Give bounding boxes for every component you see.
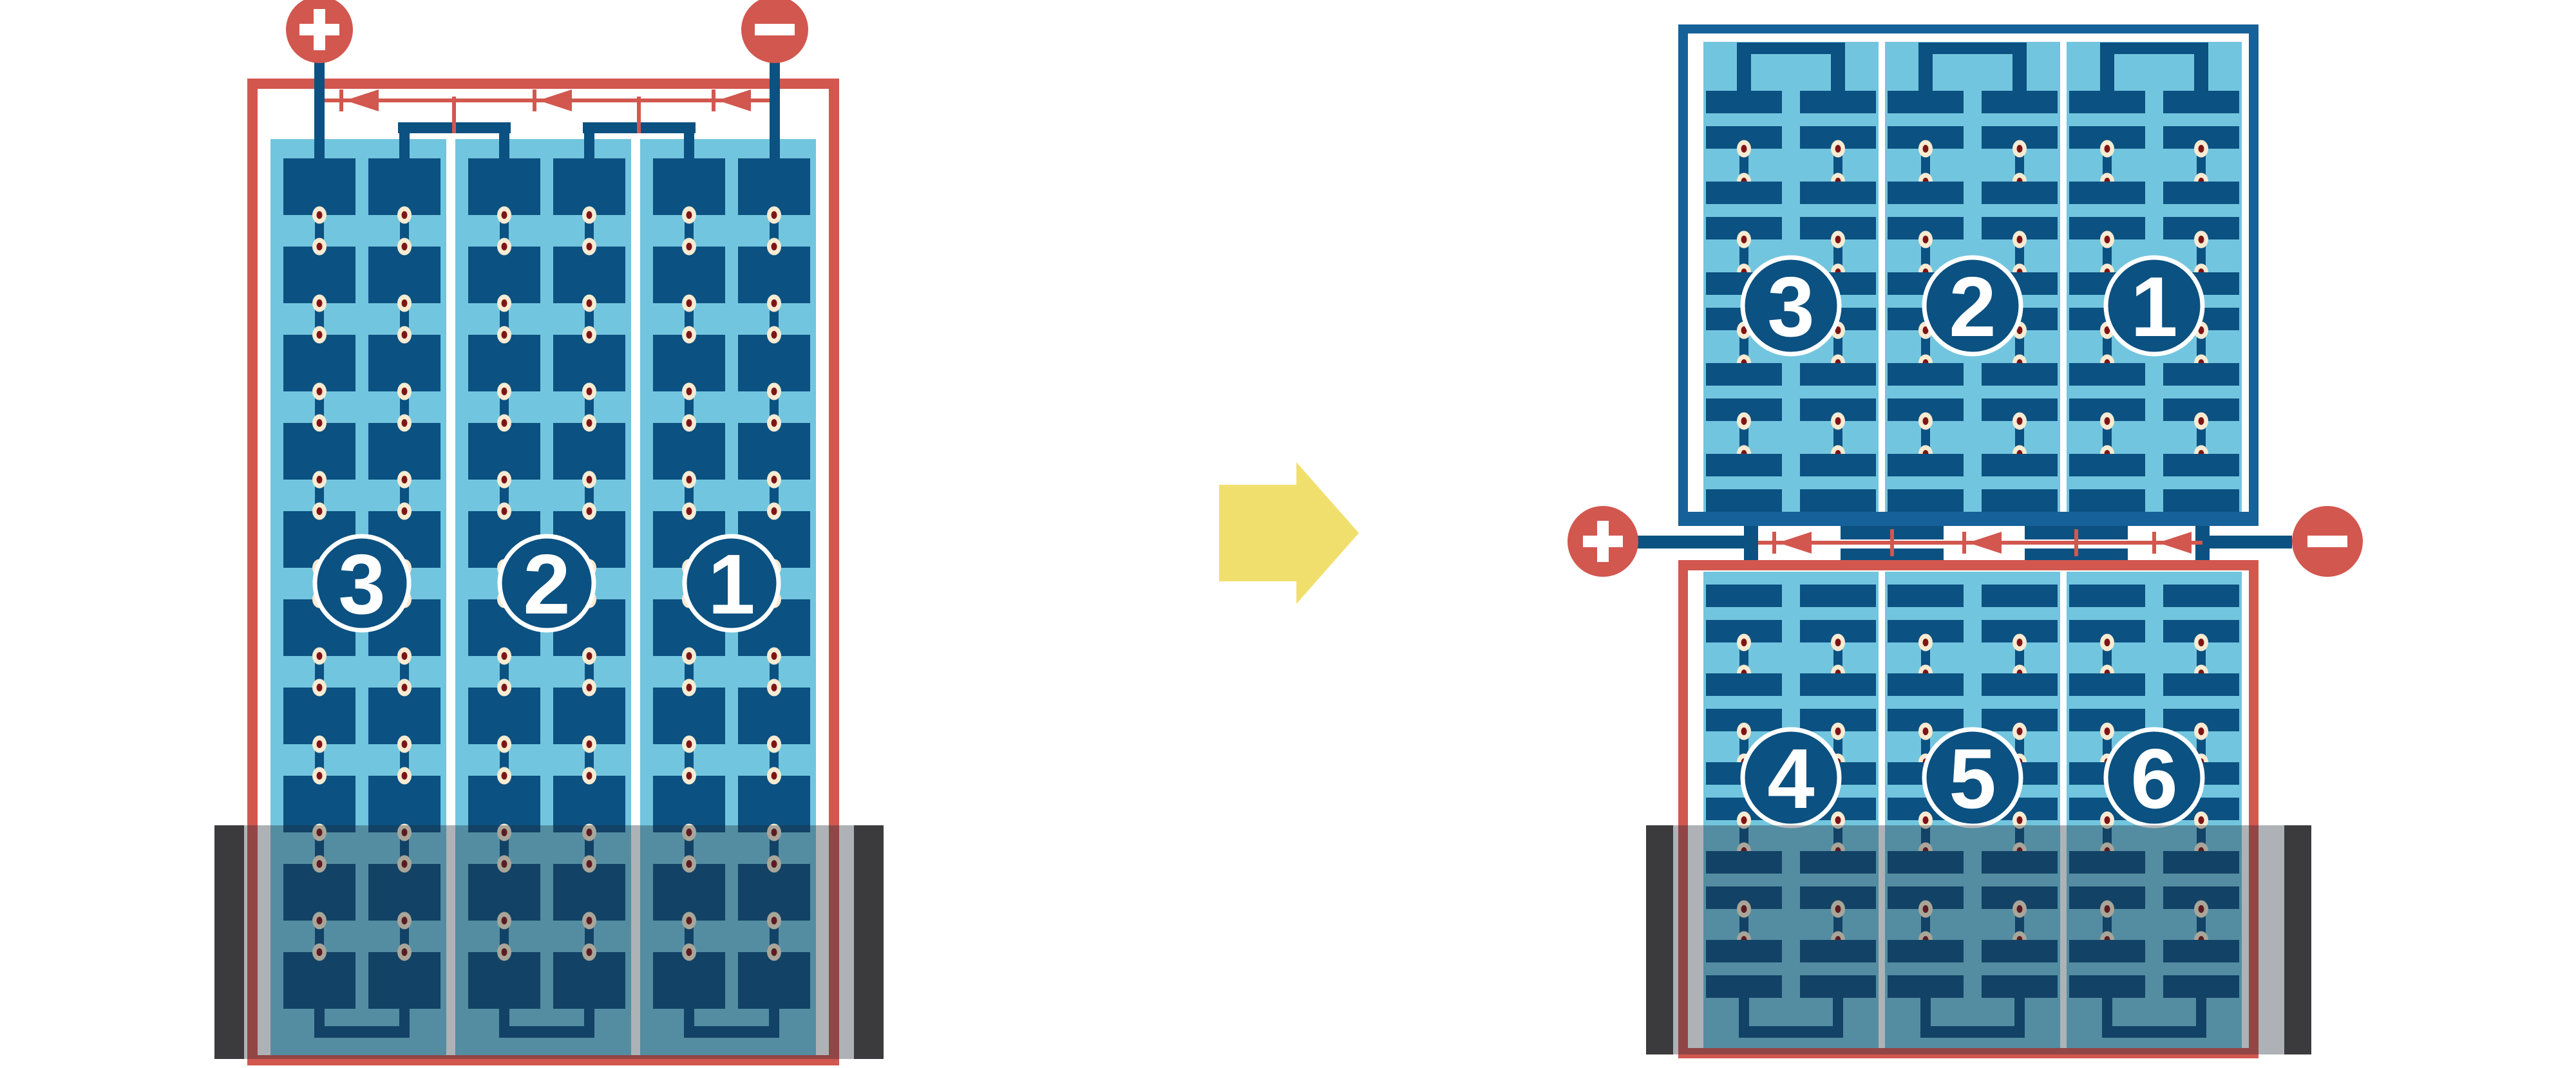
solder-dot-icon [317, 299, 323, 307]
string-number-badge: 1 [2106, 258, 2202, 354]
shade-overlay [214, 825, 884, 1059]
junction-tick [2074, 529, 2078, 556]
solder-dot-icon [687, 652, 692, 660]
solder-dot-icon [2105, 727, 2110, 735]
solar-half-cell [1888, 454, 1964, 476]
string-number-badge: 3 [315, 536, 409, 632]
solder-dot-icon [2105, 236, 2110, 243]
string-number-badge: 2 [1924, 258, 2021, 354]
solder-dot-icon [502, 299, 507, 307]
solder-dot-icon [587, 419, 592, 427]
solder-dot-icon [587, 388, 592, 395]
solar-half-cell [1888, 363, 1964, 386]
bypass-diode-icon [533, 89, 572, 111]
solder-dot-icon [1923, 236, 1929, 243]
solder-dot-icon [402, 740, 408, 748]
solar-half-cell [2069, 489, 2145, 512]
solder-dot-icon [502, 419, 507, 427]
shadow-edge-bar [1646, 825, 1673, 1054]
solar-half-cell [1982, 585, 2058, 607]
solar-half-cell [2069, 585, 2145, 607]
solder-dot-icon [687, 684, 692, 691]
frame-bottom [1678, 512, 2259, 526]
terminal-stem [2210, 536, 2292, 548]
solar-half-cell [2163, 673, 2239, 696]
bridge-bar [1918, 42, 2027, 54]
diode-cathode-bar [1772, 532, 1776, 554]
solder-dot-icon [502, 740, 507, 748]
solder-dot-icon [772, 388, 777, 395]
solar-half-cell [1706, 91, 1782, 113]
solder-dot-icon [2199, 417, 2204, 425]
solder-dot-icon [317, 388, 323, 395]
solar-half-cell [2069, 454, 2145, 476]
solder-dot-icon [687, 476, 692, 483]
shadow-edge-bar [214, 825, 244, 1059]
solder-dot-icon [402, 652, 408, 660]
solder-dot-icon [317, 243, 323, 250]
solder-dot-icon [502, 476, 507, 483]
solder-dot-icon [2017, 727, 2023, 735]
solar-half-cell [1800, 585, 1876, 607]
badge-number: 5 [1949, 731, 1996, 826]
solder-dot-icon [2017, 639, 2023, 646]
diode-triangle [1778, 532, 1812, 554]
shadow-region [1646, 825, 2311, 1054]
solar-half-cell [2069, 91, 2145, 113]
solar-half-cell [2163, 182, 2239, 204]
badge-number: 3 [1767, 259, 1814, 354]
solder-dot-icon [687, 419, 692, 427]
solder-dot-icon [587, 476, 592, 483]
solar-half-cell [1982, 489, 2058, 512]
solder-dot-icon [502, 652, 507, 660]
solder-dot-icon [1923, 727, 1929, 735]
solder-dot-icon [2105, 816, 2110, 824]
solar-half-cell [2163, 489, 2239, 512]
diode-bus [325, 89, 770, 133]
solder-dot-icon [317, 476, 323, 483]
string-number-badge: 6 [2106, 729, 2202, 826]
solder-dot-icon [772, 331, 777, 339]
solder-dot-icon [502, 211, 507, 219]
solder-dot-icon [1923, 417, 1929, 425]
solar-half-cell [1800, 673, 1876, 696]
solder-dot-icon [587, 507, 592, 515]
solder-dot-icon [317, 740, 323, 748]
solder-dot-icon [502, 388, 507, 395]
solder-dot-icon [502, 331, 507, 339]
solder-dot-icon [2199, 639, 2204, 646]
solder-dot-icon [1923, 145, 1929, 153]
solder-dot-icon [317, 772, 323, 780]
solder-dot-icon [1835, 145, 1841, 153]
diagram-canvas: 321321456 [0, 0, 2576, 1068]
solder-dot-icon [2105, 417, 2110, 425]
frame-right [2249, 24, 2259, 526]
solder-dot-icon [772, 652, 777, 660]
solder-dot-icon [687, 388, 692, 395]
diode-triangle [538, 89, 572, 111]
solder-dot-icon [1741, 417, 1747, 425]
solar-half-cell [1706, 363, 1782, 386]
bridge-leg [584, 132, 594, 160]
solder-dot-icon [772, 507, 777, 515]
string-number-badge: 4 [1743, 729, 1839, 826]
diode-cathode-bar [2152, 532, 2156, 554]
solder-dot-icon [402, 684, 408, 691]
transform-arrow [1219, 462, 1359, 604]
plus-icon [1597, 521, 1609, 562]
bypass-diode-icon [2152, 532, 2192, 554]
badge-number: 3 [338, 537, 385, 632]
solder-dot-icon [402, 243, 408, 250]
solder-dot-icon [402, 388, 408, 395]
solar-half-cell [1982, 91, 2058, 113]
solder-dot-icon [402, 476, 408, 483]
solar-half-cell [1888, 585, 1964, 607]
solder-dot-icon [687, 243, 692, 250]
solar-half-cell [1888, 182, 1964, 204]
solar-half-cell [2163, 585, 2239, 607]
junction-tick [1890, 529, 1894, 556]
bridge-bar [1737, 42, 1845, 54]
solder-dot-icon [772, 740, 777, 748]
solder-dot-icon [1835, 639, 1841, 646]
transform-arrow-icon [1219, 462, 1359, 604]
shade-overlay [1646, 825, 2311, 1054]
right-module-bottom-half: 456 [1646, 560, 2311, 1058]
solder-dot-icon [317, 211, 323, 219]
diode-triangle [717, 89, 751, 111]
junction-side-link [1744, 526, 1758, 561]
solder-dot-icon [2017, 145, 2023, 153]
bypass-diode-icon [1772, 532, 1812, 554]
solder-dot-icon [2199, 816, 2204, 824]
solar-half-cell [1800, 489, 1876, 512]
positive-terminal [1567, 506, 1638, 577]
solder-dot-icon [1741, 639, 1747, 646]
bridge-leg [2012, 52, 2027, 91]
left-module: 321 [214, 0, 884, 1060]
badge-number: 4 [1767, 731, 1814, 826]
solder-dot-icon [687, 740, 692, 748]
solder-dot-icon [1741, 236, 1747, 243]
solder-dot-icon [2017, 236, 2023, 243]
solar-half-cell [1982, 363, 2058, 386]
solar-half-cell [1706, 182, 1782, 204]
junction-tick [452, 97, 456, 133]
minus-icon [755, 24, 795, 35]
plus-icon [314, 9, 325, 50]
badge-number: 6 [2130, 731, 2177, 826]
solder-dot-icon [317, 331, 323, 339]
bridge-leg [1831, 52, 1845, 91]
solder-dot-icon [1741, 145, 1747, 153]
solder-dot-icon [1923, 816, 1929, 824]
solder-dot-icon [587, 740, 592, 748]
solder-dot-icon [772, 299, 777, 307]
solder-dot-icon [587, 331, 592, 339]
bridge-leg [1918, 52, 1933, 91]
solar-half-cell [1800, 91, 1876, 113]
solder-dot-icon [402, 211, 408, 219]
solar-half-cell [2163, 454, 2239, 476]
solar-half-cell [1982, 182, 2058, 204]
solder-dot-icon [1835, 417, 1841, 425]
solder-dot-icon [687, 299, 692, 307]
shadow-region [214, 825, 884, 1059]
solder-dot-icon [1835, 816, 1841, 824]
solder-dot-icon [2017, 417, 2023, 425]
bypass-diode-icon [1962, 532, 2002, 554]
solar-half-cell [2163, 91, 2239, 113]
badge-number: 2 [1949, 259, 1996, 354]
bridge-leg [684, 132, 694, 160]
solar-half-cell [1888, 91, 1964, 113]
shadow-edge-bar [2284, 825, 2311, 1054]
solder-dot-icon [1923, 639, 1929, 646]
positive-terminal [286, 0, 353, 63]
string-number-badge: 5 [1924, 729, 2021, 826]
solar-half-cell [2069, 673, 2145, 696]
solder-dot-icon [317, 419, 323, 427]
solder-dot-icon [587, 211, 592, 219]
solder-dot-icon [402, 331, 408, 339]
solder-dot-icon [317, 507, 323, 515]
solder-dot-icon [587, 243, 592, 250]
solder-dot-icon [2105, 639, 2110, 646]
solar-half-cell [2163, 363, 2239, 386]
solar-half-cell [1706, 454, 1782, 476]
solder-dot-icon [587, 652, 592, 660]
junction-tick [637, 97, 641, 133]
solder-dot-icon [687, 211, 692, 219]
solar-half-cell [1706, 489, 1782, 512]
solder-dot-icon [587, 299, 592, 307]
solar-half-cell [2069, 182, 2145, 204]
solar-half-cell [1982, 673, 2058, 696]
solder-dot-icon [402, 772, 408, 780]
solar-half-cell [1888, 489, 1964, 512]
diode-cathode-bar [533, 89, 536, 111]
diode-cathode-bar [1962, 532, 1966, 554]
solder-dot-icon [502, 772, 507, 780]
solar-half-cell [1800, 454, 1876, 476]
diode-cathode-bar [712, 89, 715, 111]
solder-dot-icon [587, 684, 592, 691]
diode-triangle [1968, 532, 2002, 554]
solder-dot-icon [502, 507, 507, 515]
bridge-leg [2100, 52, 2114, 91]
frame-top [1678, 24, 2259, 33]
solar-half-cell [1982, 454, 2058, 476]
solder-dot-icon [402, 299, 408, 307]
solar-half-cell [1706, 585, 1782, 607]
solder-dot-icon [772, 684, 777, 691]
solar-half-cell [1888, 673, 1964, 696]
bridge-bar [2100, 42, 2208, 54]
solder-dot-icon [772, 476, 777, 483]
solder-dot-icon [1741, 816, 1747, 824]
solder-dot-icon [2017, 816, 2023, 824]
solder-dot-icon [402, 419, 408, 427]
solar-half-cell [1706, 673, 1782, 696]
bridge-leg [1737, 52, 1751, 91]
negative-terminal [2292, 506, 2363, 577]
bypass-diode-icon [339, 89, 379, 111]
badge-number: 1 [2130, 259, 2177, 354]
frame-left [1678, 24, 1688, 526]
solder-dot-icon [2199, 145, 2204, 153]
solder-dot-icon [1741, 727, 1747, 735]
solder-dot-icon [317, 684, 323, 691]
solar-half-cell [2069, 363, 2145, 386]
diode-cathode-bar [339, 89, 343, 111]
solder-dot-icon [772, 419, 777, 427]
solder-dot-icon [317, 652, 323, 660]
bypass-diode-icon [712, 89, 751, 111]
bridge-leg [499, 132, 509, 160]
diode-bus [1758, 529, 2202, 556]
solder-dot-icon [502, 243, 507, 250]
terminal-stem [1638, 536, 1745, 548]
negative-terminal [741, 0, 808, 63]
solder-dot-icon [687, 772, 692, 780]
solder-dot-icon [687, 507, 692, 515]
string-number-badge: 3 [1743, 258, 1839, 354]
diode-triangle [345, 89, 379, 111]
solar-module-wiring-diagram: 321321456 [0, 0, 2576, 1068]
solder-dot-icon [1835, 236, 1841, 243]
frame-top [1678, 560, 2259, 570]
shadow-edge-bar [854, 825, 884, 1059]
solder-dot-icon [687, 331, 692, 339]
string-number-badge: 1 [685, 536, 779, 632]
solder-dot-icon [2199, 236, 2204, 243]
string-number-badge: 2 [500, 536, 594, 632]
badge-number: 2 [523, 537, 570, 632]
minus-icon [2307, 536, 2347, 547]
solder-dot-icon [2105, 145, 2110, 153]
solder-dot-icon [502, 684, 507, 691]
solder-dot-icon [772, 243, 777, 250]
solder-dot-icon [587, 772, 592, 780]
badge-number: 1 [708, 537, 755, 632]
solder-dot-icon [402, 507, 408, 515]
solder-dot-icon [1835, 727, 1841, 735]
right-module-top-half: 321 [1678, 24, 2259, 526]
bridge-leg [399, 132, 410, 160]
solder-dot-icon [772, 772, 777, 780]
solar-half-cell [1800, 363, 1876, 386]
diode-triangle [2158, 532, 2192, 554]
solder-dot-icon [772, 211, 777, 219]
solar-half-cell [1800, 182, 1876, 204]
bridge-leg [2194, 52, 2208, 91]
solder-dot-icon [2199, 727, 2204, 735]
